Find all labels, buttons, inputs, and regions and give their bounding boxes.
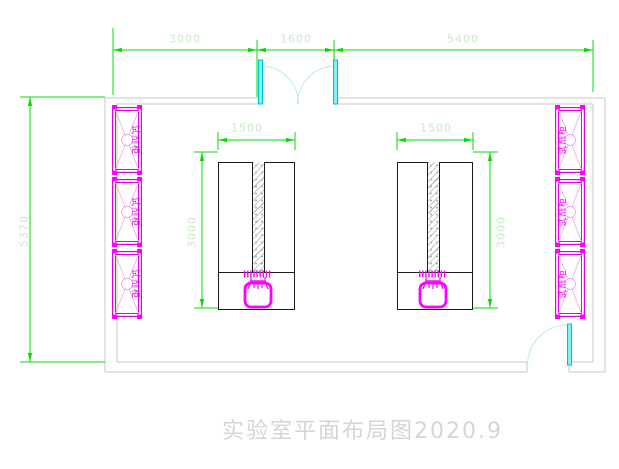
dim-label-bench1-depth: 3000	[187, 216, 198, 248]
dim-label-room-height: 5370	[19, 215, 30, 247]
door-swing-arc	[297, 66, 333, 104]
dim-label-bench2-width: 1500	[420, 123, 452, 134]
cabinet-label: 试剂柜	[130, 125, 139, 155]
door-leaf	[259, 60, 263, 104]
cabinet-label: 试剂柜	[130, 269, 139, 299]
laboratory-floor-plan: 3000 1600 5400 5370 1500 3000 1500 3000 …	[0, 0, 619, 469]
dimension-lines	[20, 28, 593, 362]
sink-symbol-right	[415, 269, 451, 311]
cabinet-label: 试剂柜	[130, 197, 139, 227]
dim-label-top-right: 5400	[447, 34, 479, 45]
door-leaf	[334, 60, 338, 104]
dim-label-top-left: 3000	[169, 34, 201, 45]
room-walls	[105, 98, 605, 372]
workbench-left-center-strip	[252, 162, 265, 273]
dim-label-bench2-depth: 3000	[496, 216, 507, 248]
dim-label-bench1-width: 1500	[231, 123, 263, 134]
sink-symbol-left	[240, 269, 276, 311]
door-swing-arc	[263, 66, 299, 104]
reagent-cabinet-left-3: 试剂柜	[112, 251, 142, 317]
door-swing-arc	[528, 325, 568, 365]
reagent-cabinet-right-3: 试剂柜	[555, 251, 585, 317]
workbench-right-center-strip	[427, 162, 440, 273]
double-door-symbol	[259, 60, 338, 104]
cabinet-label: 试剂柜	[560, 197, 569, 227]
single-door-symbol	[528, 324, 572, 365]
reagent-cabinet-right-2: 试剂柜	[555, 179, 585, 245]
reagent-cabinet-left-1: 试剂柜	[112, 107, 142, 173]
cabinet-label: 试剂柜	[560, 125, 569, 155]
cabinet-label: 试剂柜	[560, 269, 569, 299]
dim-label-top-middle: 1600	[280, 34, 312, 45]
reagent-cabinet-right-1: 试剂柜	[555, 107, 585, 173]
door-leaf	[568, 324, 572, 365]
drawing-title: 实验室平面布局图2020.9	[222, 419, 503, 445]
floor-plan-linework	[0, 0, 619, 469]
reagent-cabinet-left-2: 试剂柜	[112, 179, 142, 245]
